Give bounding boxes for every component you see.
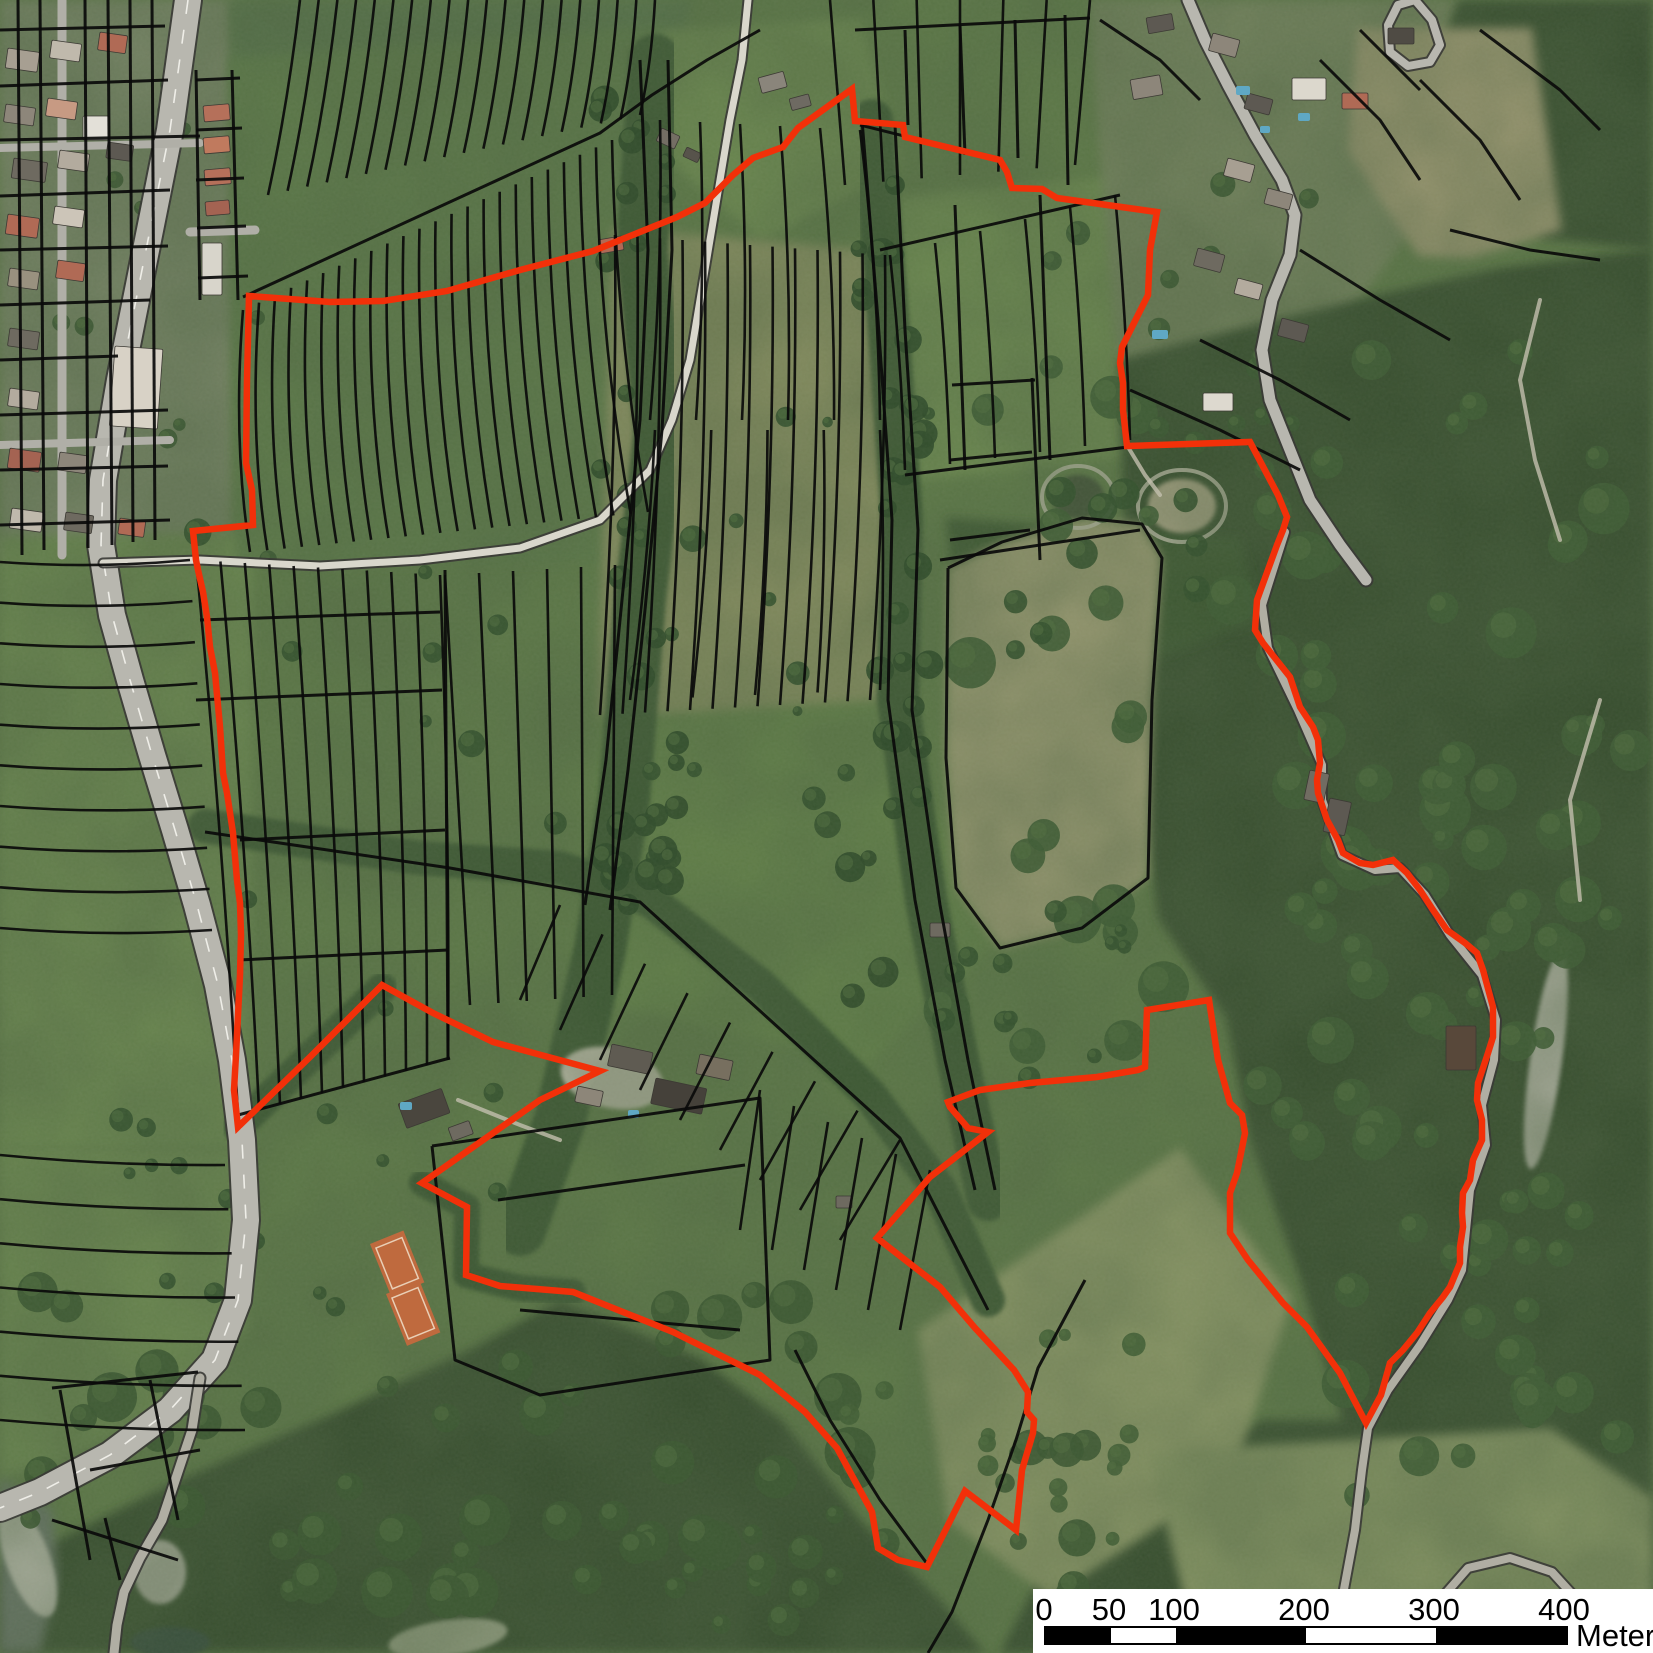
swimming-pool: [1298, 113, 1310, 121]
scale-bar-segment: [1436, 1628, 1566, 1643]
scale-bar-segment: [1176, 1628, 1306, 1643]
map-viewport: 0 50 100 200 300 400 Meter: [0, 0, 1653, 1653]
building-footprint: [202, 243, 222, 295]
scale-bar-segment: [1046, 1628, 1111, 1643]
building-footprint: [1292, 78, 1326, 100]
building-footprint: [930, 923, 950, 937]
building-footprint: [203, 136, 230, 154]
parcel-boundary-line: [196, 178, 244, 180]
scale-bar-unit-label: Meter: [1576, 1620, 1653, 1651]
building-footprint: [7, 328, 39, 350]
swimming-pool: [1260, 126, 1270, 133]
scale-bar: 0 50 100 200 300 400 Meter: [1033, 1589, 1653, 1653]
aerial-basemap: [0, 0, 1653, 1653]
building-footprint: [204, 168, 231, 186]
parcel-boundary-line: [198, 276, 248, 278]
building-footprint: [49, 40, 81, 62]
building-footprint: [9, 508, 43, 532]
scale-bar-tick-label: 200: [1244, 1594, 1364, 1625]
building-footprint: [97, 32, 127, 54]
building-footprint: [45, 98, 77, 120]
photo-grain-layer: [0, 0, 1653, 1653]
building-footprint: [5, 48, 39, 72]
parcel-boundary-line: [197, 226, 246, 228]
swimming-pool: [1236, 86, 1250, 95]
building-footprint: [7, 268, 39, 290]
parcel-boundary-line: [196, 128, 242, 130]
street-b: [0, 143, 200, 148]
building-footprint: [1388, 28, 1414, 44]
building-footprint: [52, 206, 84, 228]
scale-bar-segment: [1306, 1628, 1436, 1643]
scale-bar-tick-label: 300: [1374, 1594, 1494, 1625]
building-footprint: [7, 388, 39, 410]
building-footprint: [57, 452, 87, 474]
photo-grain: [0, 0, 1653, 1653]
building-footprint: [55, 260, 85, 282]
building-footprint: [205, 200, 230, 216]
building-footprint: [1446, 1026, 1476, 1070]
scale-bar-segment: [1111, 1628, 1176, 1643]
swimming-pool: [1152, 330, 1168, 339]
building-footprint: [1203, 393, 1233, 411]
swimming-pool: [400, 1102, 412, 1110]
scale-bar-tick-label: 100: [1114, 1594, 1234, 1625]
street-c: [0, 440, 170, 445]
building-footprint: [203, 104, 230, 122]
scale-bar-segments: [1044, 1626, 1568, 1645]
building-footprint: [5, 214, 39, 238]
